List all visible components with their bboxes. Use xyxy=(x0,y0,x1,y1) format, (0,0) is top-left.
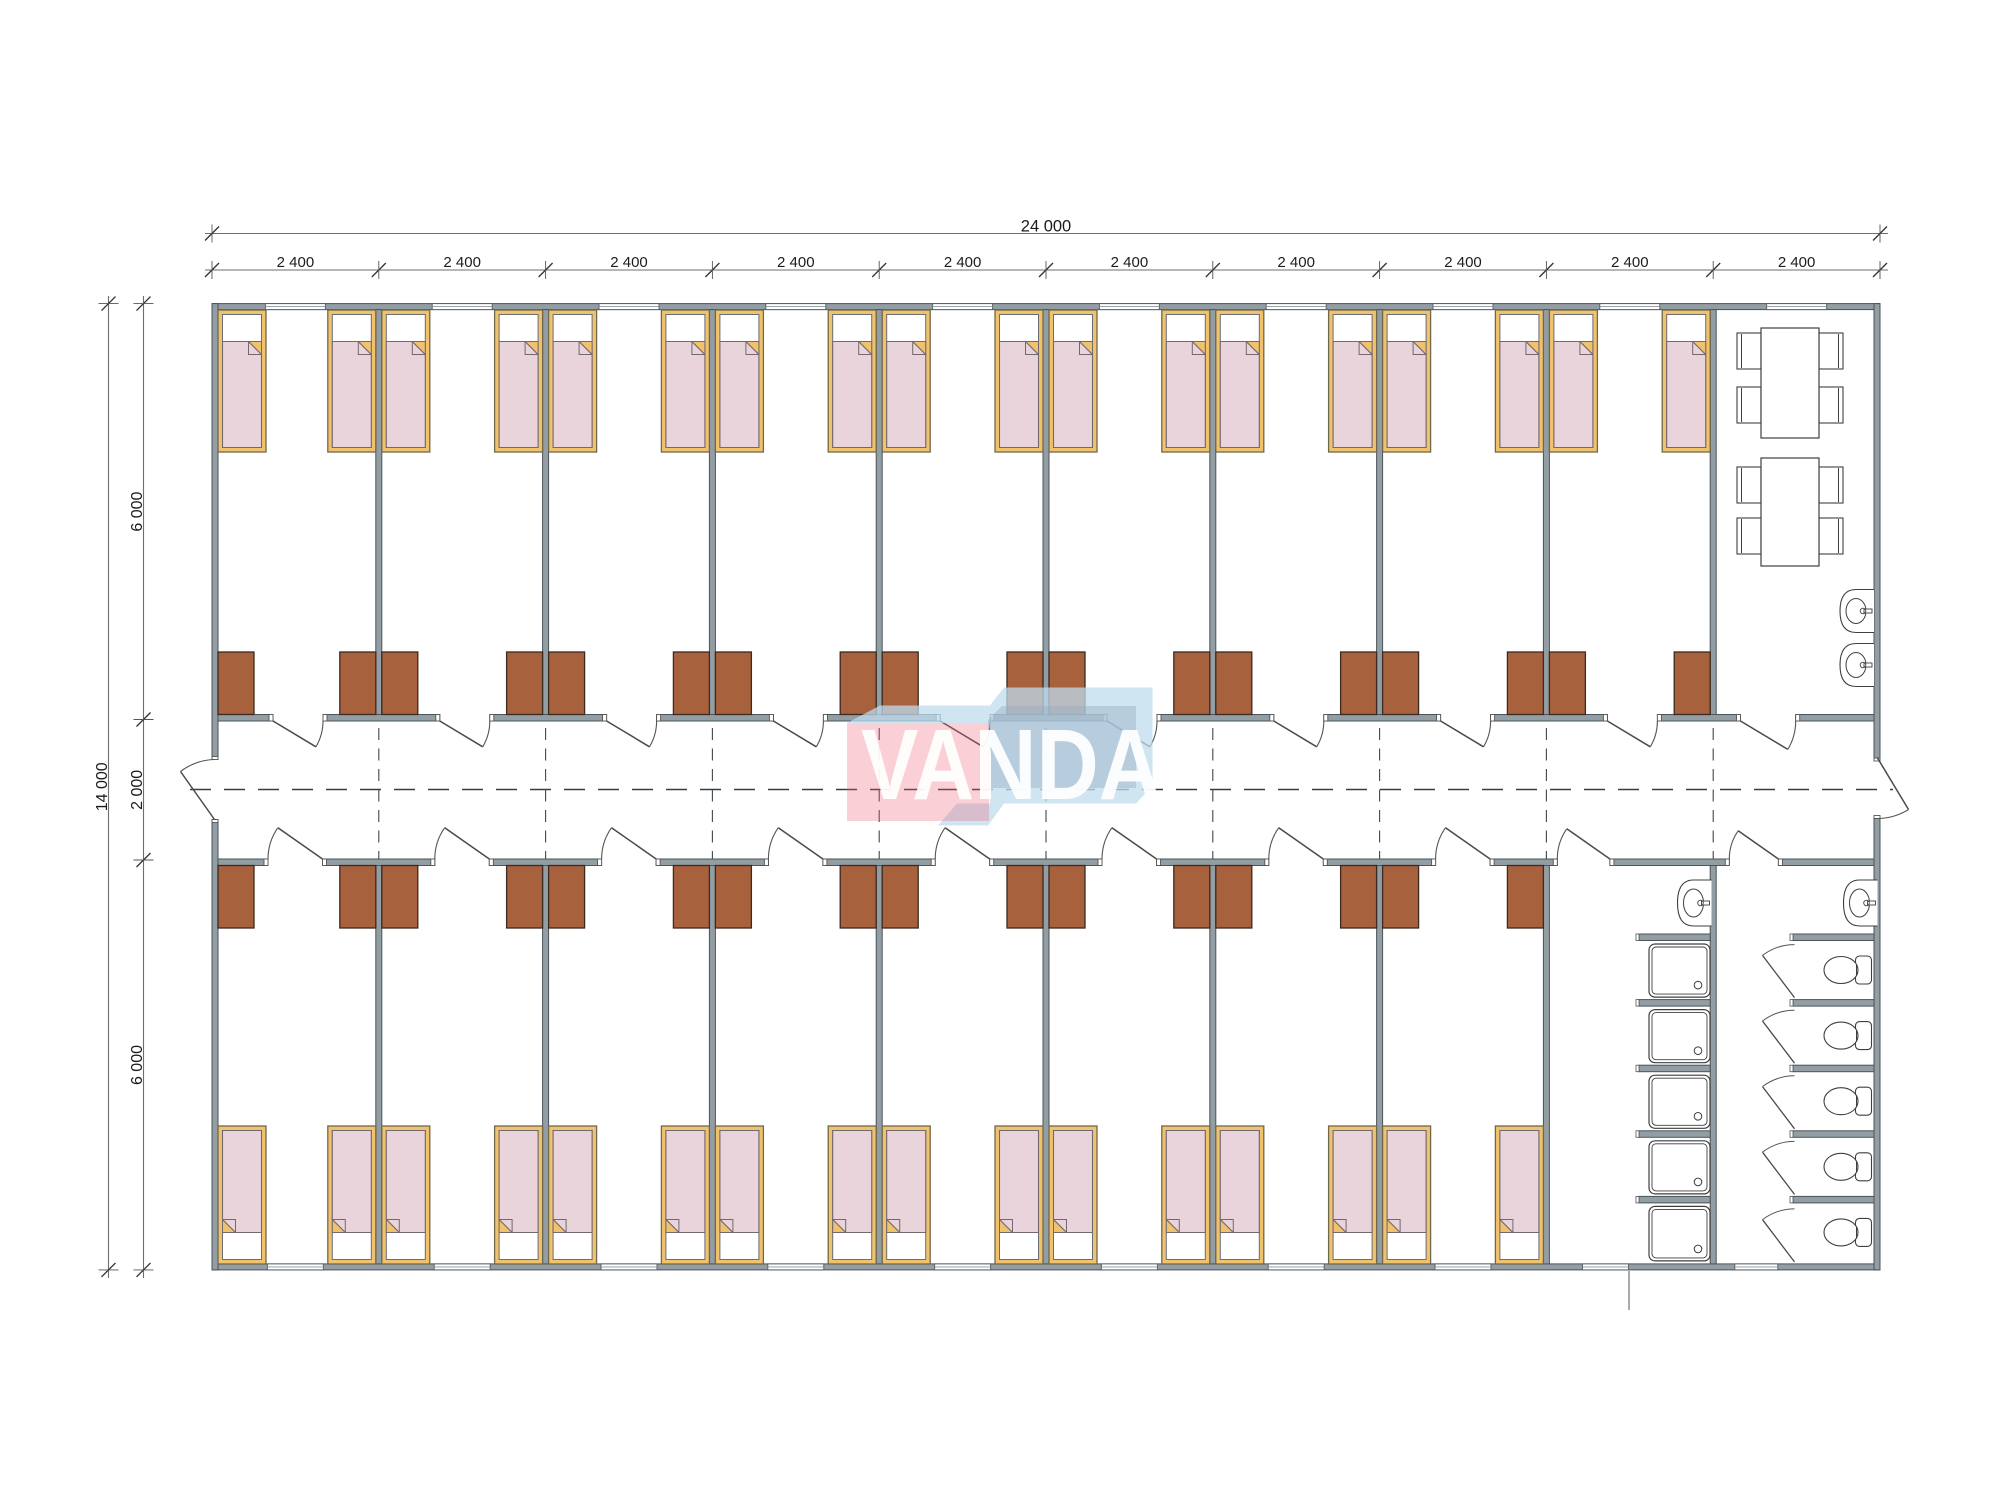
svg-text:2 400: 2 400 xyxy=(944,254,982,271)
svg-text:2 400: 2 400 xyxy=(277,254,315,271)
svg-text:2 400: 2 400 xyxy=(777,254,815,271)
svg-text:6 000: 6 000 xyxy=(129,491,146,531)
svg-text:VANDA: VANDA xyxy=(861,708,1161,820)
svg-text:2 000: 2 000 xyxy=(129,770,146,810)
svg-text:2 400: 2 400 xyxy=(1611,254,1649,271)
svg-text:2 400: 2 400 xyxy=(443,254,481,271)
svg-text:2 400: 2 400 xyxy=(1444,254,1482,271)
svg-text:6 000: 6 000 xyxy=(129,1045,146,1085)
svg-text:2 400: 2 400 xyxy=(1111,254,1149,271)
svg-text:2 400: 2 400 xyxy=(610,254,648,271)
svg-text:2 400: 2 400 xyxy=(1277,254,1315,271)
svg-text:14 000: 14 000 xyxy=(94,762,111,811)
svg-text:24 000: 24 000 xyxy=(1021,218,1071,236)
svg-text:2 400: 2 400 xyxy=(1778,254,1816,271)
